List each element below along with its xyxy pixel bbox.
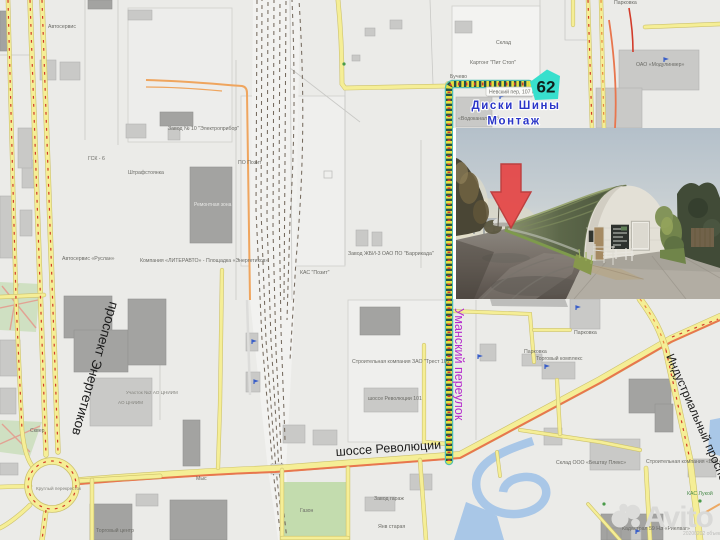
svg-text:Круглый перекресток: Круглый перекресток <box>36 485 82 491</box>
svg-text:Невский пер, 107 к2: Невский пер, 107 к2 <box>489 89 537 96</box>
svg-text:Бучево: Бучево <box>450 74 467 80</box>
svg-text:62: 62 <box>537 78 556 97</box>
svg-text:Ремонтная зона: Ремонтная зона <box>194 202 232 208</box>
svg-text:Завод гараж: Завод гараж <box>374 496 404 502</box>
svg-text:Завод ЖБИ-3 ОАО ПО "Баррикада": Завод ЖБИ-3 ОАО ПО "Баррикада" <box>348 251 434 257</box>
svg-text:Газон: Газон <box>300 508 314 514</box>
svg-text:ОАО «Модулинвер»: ОАО «Модулинвер» <box>636 62 685 68</box>
svg-text:Картонг "Пит Стоп": Картонг "Пит Стоп" <box>470 60 516 66</box>
svg-text:Сквер: Сквер <box>30 428 45 434</box>
svg-text:КАС "Позит": КАС "Позит" <box>300 270 330 276</box>
svg-text:Янв старая: Янв старая <box>378 524 405 530</box>
svg-text:Участок №2 АО ЦНИИМ: Участок №2 АО ЦНИИМ <box>126 390 178 395</box>
svg-text:Компания «ЛИТЕРАВТО» - Площадк: Компания «ЛИТЕРАВТО» - Площадка «Энергет… <box>140 258 269 264</box>
svg-text:Диски Шины: Диски Шины <box>471 100 560 112</box>
svg-text:Завод № 10 "Электроприбор": Завод № 10 "Электроприбор" <box>168 126 239 132</box>
svg-text:Торговый комплекс: Торговый комплекс <box>536 355 583 362</box>
svg-text:Склад ООО «Бештау Плекс»: Склад ООО «Бештау Плекс» <box>556 460 626 466</box>
svg-text:Автосервис «Руслан»: Автосервис «Руслан» <box>62 256 115 262</box>
svg-text:АО ЦНИИМ: АО ЦНИИМ <box>118 400 143 405</box>
svg-text:20200202 объектов: 20200202 объектов <box>683 531 720 537</box>
svg-text:шоссе Революции 101: шоссе Революции 101 <box>368 396 422 402</box>
svg-text:ПО Позит: ПО Позит <box>238 160 262 166</box>
svg-text:Штрафстоянка: Штрафстоянка <box>128 170 164 176</box>
svg-text:Парковка: Парковка <box>574 330 597 336</box>
svg-text:Автосервис: Автосервис <box>48 24 76 30</box>
svg-text:Парковка: Парковка <box>614 0 637 6</box>
svg-text:Склад: Склад <box>496 40 511 46</box>
svg-text:Торговый центр: Торговый центр <box>96 527 134 534</box>
svg-text:Уманский переулок: Уманский переулок <box>452 308 466 421</box>
svg-text:Монтаж: Монтаж <box>487 116 540 128</box>
svg-text:Строительная компания ЗАО "Тре: Строительная компания ЗАО "Трест 101" <box>352 359 452 365</box>
svg-text:Avito: Avito <box>644 501 714 534</box>
svg-text:Парковка: Парковка <box>524 349 547 355</box>
svg-text:ГСК - 6: ГСК - 6 <box>88 156 105 162</box>
svg-text:Мыс: Мыс <box>196 476 207 482</box>
